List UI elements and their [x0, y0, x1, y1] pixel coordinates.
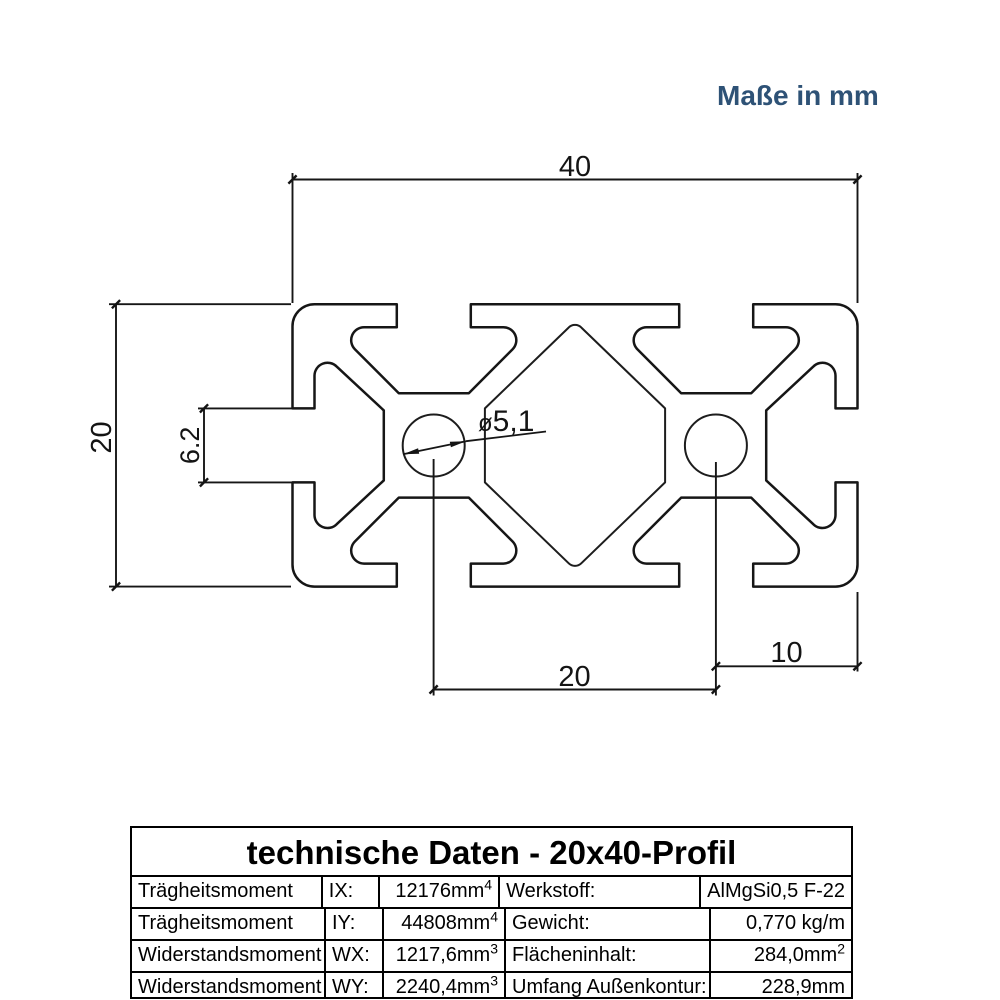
svg-text:20: 20 [86, 421, 118, 453]
svg-text:ø5,1: ø5,1 [478, 405, 534, 438]
svg-text:6.2: 6.2 [175, 427, 205, 465]
svg-text:40: 40 [559, 151, 591, 183]
svg-text:20: 20 [558, 661, 590, 693]
svg-text:10: 10 [770, 637, 802, 669]
